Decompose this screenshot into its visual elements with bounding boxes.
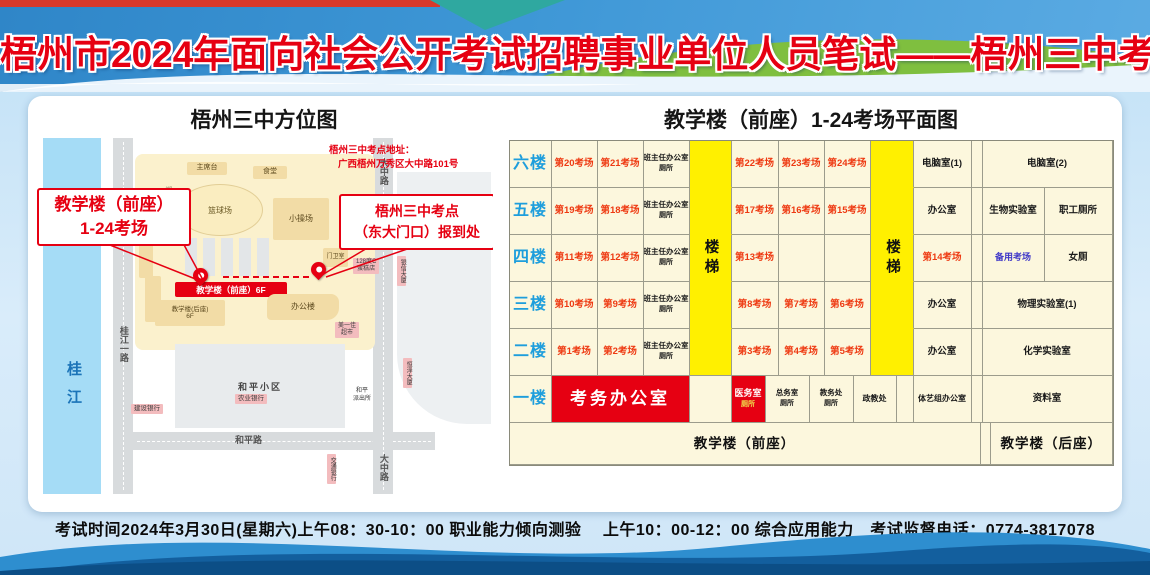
office-building: 办公楼 [267, 294, 339, 320]
plan-cell: 班主任办公室厕所 [644, 188, 690, 235]
river-label: 桂江 [63, 361, 84, 417]
plan-cell [972, 329, 983, 376]
plan-cell [981, 423, 991, 465]
plan-cell: 体艺组办公室 [914, 376, 972, 423]
plan-cell: 六楼 [510, 141, 552, 188]
venue-address-line1: 梧州三中考点地址： [329, 144, 458, 158]
floor-row: 四楼第11考场第12考场班主任办公室厕所楼梯第13考场楼梯第14考场备用考场女厕 [510, 235, 1113, 282]
plan-cell: 二楼 [510, 329, 552, 376]
poi-ccb-bank: 建设银行 [131, 404, 163, 414]
plan-cell: 班主任办公室厕所 [644, 235, 690, 282]
plan-cell: 职工厕所 [1045, 188, 1113, 235]
plan-cell: 第16考场 [779, 188, 825, 235]
plan-cell [972, 376, 983, 423]
plan-cell: 考务办公室 [552, 376, 690, 423]
plan-cell: 教务处厕所 [810, 376, 854, 423]
plan-cell: 第24考场 [825, 141, 871, 188]
plan-cell: 第15考场 [825, 188, 871, 235]
plan-cell: 第3考场 [732, 329, 779, 376]
plan-cell: 第23考场 [779, 141, 825, 188]
plan-cell: 班主任办公室厕所 [644, 141, 690, 188]
poi-abc-bank: 农业银行 [235, 394, 267, 404]
page-title: 梧州市2024年面向社会公开考试招聘事业单位人员笔试——梧州三中考点 [0, 24, 1150, 78]
plan-cell: 总务室厕所 [766, 376, 810, 423]
plan-cell: 第21考场 [598, 141, 644, 188]
plan-cell: 第8考场 [732, 282, 779, 329]
poi-police-line2: 派出所 [353, 396, 371, 404]
poi-tower-2: 恒泽大厦 [403, 358, 412, 388]
plan-cell: 医务室厕所 [732, 376, 766, 423]
plan-cell: 教学楼（后座） [991, 423, 1113, 465]
callout-checkin-line2: （东大门口）报到处 [354, 222, 480, 243]
plan-cell: 政教处 [854, 376, 897, 423]
header-band: 梧州市2024年面向社会公开考试招聘事业单位人员笔试——梧州三中考点 [0, 0, 1150, 92]
plan-cell [690, 376, 732, 423]
plan-cell: 办公室 [914, 188, 972, 235]
poi-police-station: 和平 派出所 [353, 388, 371, 404]
plan-cell: 资料室 [983, 376, 1113, 423]
poi-bocom-bank: 交通银行 [327, 454, 336, 484]
plan-cell: 第4考场 [779, 329, 825, 376]
plan-cell: 第2考场 [598, 329, 644, 376]
plan-cell [871, 282, 914, 329]
floor-row: 一楼考务办公室医务室厕所总务室厕所教务处厕所政教处体艺组办公室资料室 [510, 376, 1113, 423]
teaching-rear-building: 教学楼(后座) 6F [155, 300, 225, 326]
plan-cell [690, 188, 732, 235]
callout-exam-rooms: 教学楼（前座） 1-24考场 [37, 188, 191, 246]
callout-checkin: 梧州三中考点 （东大门口）报到处 [339, 194, 493, 250]
plan-cell: 第19考场 [552, 188, 598, 235]
plan-cell: 班主任办公室厕所 [644, 329, 690, 376]
plan-cell: 一楼 [510, 376, 552, 423]
poi-cake-shop: 128度C 蛋糕店 [353, 258, 379, 274]
walking-route-dashed [223, 276, 309, 278]
poi-cake-line2: 蛋糕店 [356, 266, 376, 273]
floor-row: 二楼第1考场第2考场班主任办公室厕所第3考场第4考场第5考场办公室化学实验室 [510, 329, 1113, 376]
plan-cell [871, 329, 914, 376]
road-dazhong [373, 138, 393, 494]
plan-cell: 电脑室(1) [914, 141, 972, 188]
floor-row: 五楼第19考场第18考场班主任办公室厕所第17考场第16考场第15考场办公室生物… [510, 188, 1113, 235]
stage-building: 主席台 [187, 162, 227, 175]
poster: 梧州市2024年面向社会公开考试招聘事业单位人员笔试——梧州三中考点 梧州三中方… [0, 0, 1150, 575]
floor-row: 六楼第20考场第21考场班主任办公室厕所第22考场第23考场第24考场电脑室(1… [510, 141, 1113, 188]
teaching-rear-floors: 6F [186, 313, 194, 320]
plan-cell: 第20考场 [552, 141, 598, 188]
floor-plan-title: 教学楼（前座）1-24考场平面图 [504, 104, 1118, 134]
poi-supermarket-line2: 超市 [338, 330, 356, 337]
callout-exam-line2: 1-24考场 [80, 217, 148, 241]
plan-cell: 第6考场 [825, 282, 871, 329]
poi-tower-1: 银信大厦 [397, 256, 406, 286]
plan-cell: 教学楼（前座） [510, 423, 981, 465]
plan-cell: 第1考场 [552, 329, 598, 376]
plan-cell: 第13考场 [732, 235, 779, 282]
canteen-building: 食堂 [253, 166, 287, 179]
plan-cell: 第14考场 [914, 235, 972, 282]
floor-plan-panel: 教学楼（前座）1-24考场平面图 六楼第20考场第21考场班主任办公室厕所第22… [500, 96, 1122, 512]
plan-cell [825, 235, 871, 282]
playground-building: 小操场 [273, 198, 329, 240]
plan-cell: 五楼 [510, 188, 552, 235]
plan-cell: 第12考场 [598, 235, 644, 282]
plan-cell: 备用考场 [983, 235, 1045, 282]
floor-row: 三楼第10考场第9考场班主任办公室厕所第8考场第7考场第6考场办公室物理实验室(… [510, 282, 1113, 329]
plan-cell [690, 329, 732, 376]
shed-4 [239, 238, 251, 276]
road-guijiang-label: 桂江一路 [118, 326, 128, 362]
plan-cell: 班主任办公室厕所 [644, 282, 690, 329]
plan-cell: 第22考场 [732, 141, 779, 188]
plan-cell: 办公室 [914, 329, 972, 376]
plan-cell: 电脑室(2) [983, 141, 1113, 188]
plan-cell [690, 282, 732, 329]
plan-cell: 四楼 [510, 235, 552, 282]
community-block: 和平小区 [175, 344, 345, 428]
plan-cell: 第9考场 [598, 282, 644, 329]
poi-police-line1: 和平 [353, 388, 371, 396]
venue-address: 梧州三中考点地址： 广西梧州万秀区大中路101号 [329, 144, 458, 173]
plan-cell [871, 188, 914, 235]
map-title: 梧州三中方位图 [28, 104, 500, 134]
plan-cell [779, 235, 825, 282]
plan-cell: 生物实验室 [983, 188, 1045, 235]
teaching-rear-label: 教学楼(后座) [172, 306, 209, 313]
content-card: 梧州三中方位图 桂江 桂江一路 和平路 大中路 大中路 塑胶跑道 图书综合楼 主… [28, 96, 1122, 512]
road-heping-label: 和平路 [235, 436, 262, 446]
plan-cell: 第5考场 [825, 329, 871, 376]
callout-checkin-line1: 梧州三中考点 [375, 201, 459, 222]
map-panel: 梧州三中方位图 桂江 桂江一路 和平路 大中路 大中路 塑胶跑道 图书综合楼 主… [28, 96, 500, 512]
building-footer-row: 教学楼（前座）教学楼（后座） [510, 423, 1113, 465]
plan-cell: 第18考场 [598, 188, 644, 235]
plan-cell: 第10考场 [552, 282, 598, 329]
venue-address-line2: 广西梧州万秀区大中路101号 [329, 158, 458, 172]
plan-cell: 化学实验室 [983, 329, 1113, 376]
bottom-waves [0, 513, 1150, 575]
plan-cell [972, 282, 983, 329]
plan-cell: 第17考场 [732, 188, 779, 235]
plan-cell: 女厕 [1045, 235, 1113, 282]
plan-cell: 三楼 [510, 282, 552, 329]
plan-cell: 物理实验室(1) [983, 282, 1113, 329]
plan-cell [972, 235, 983, 282]
plan-cell [690, 141, 732, 188]
shed-5 [257, 238, 269, 276]
plan-cell: 第7考场 [779, 282, 825, 329]
floor-table: 六楼第20考场第21考场班主任办公室厕所第22考场第23考场第24考场电脑室(1… [509, 140, 1114, 466]
plan-cell: 楼梯 [871, 235, 914, 282]
plan-cell: 办公室 [914, 282, 972, 329]
callout-exam-line1: 教学楼（前座） [55, 193, 174, 217]
plan-cell [972, 141, 983, 188]
plan-cell [972, 188, 983, 235]
road-dazhong-label-bottom: 大中路 [378, 454, 388, 481]
plan-cell: 第11考场 [552, 235, 598, 282]
gatehouse-building: 门卫室 [323, 248, 348, 267]
plan-cell [871, 141, 914, 188]
plan-cell: 楼梯 [690, 235, 732, 282]
location-map: 桂江 桂江一路 和平路 大中路 大中路 塑胶跑道 图书综合楼 主席台 食堂 篮球… [35, 136, 493, 498]
plan-cell [897, 376, 914, 423]
poi-supermarket: 美一佳 超市 [335, 322, 359, 338]
shed-3 [221, 238, 233, 276]
